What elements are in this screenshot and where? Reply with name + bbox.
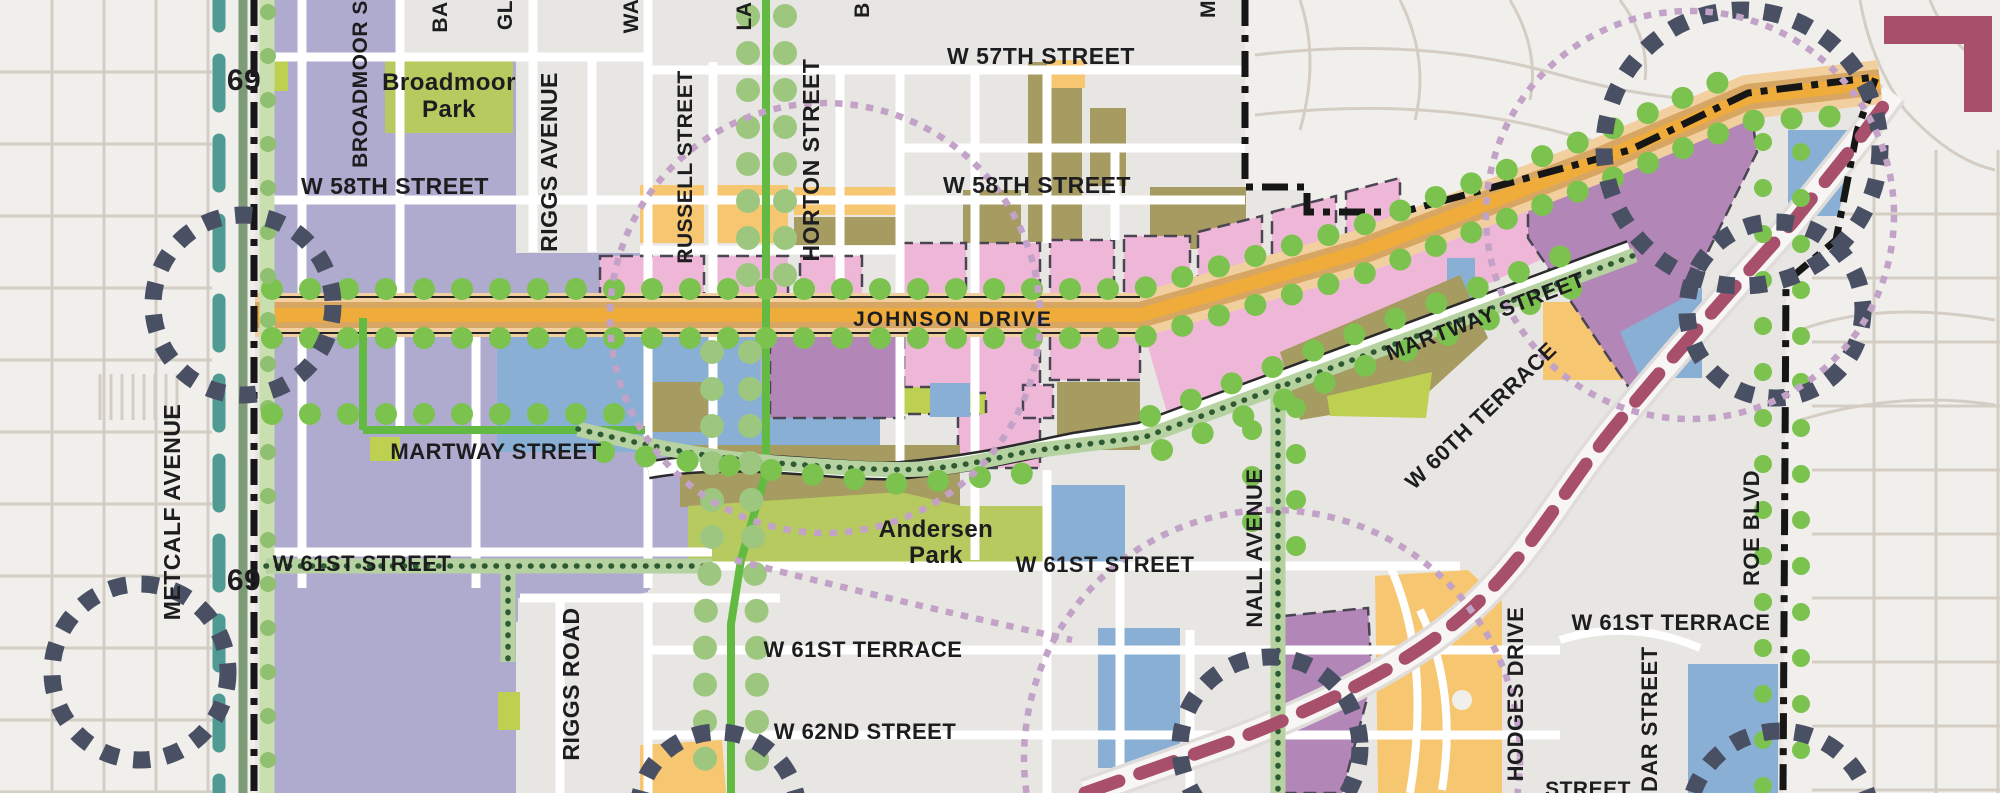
tree-dot (1567, 132, 1589, 154)
label-w61st-street-east: W 61ST STREET (1016, 552, 1195, 577)
tree-dot (745, 599, 769, 623)
tree-dot (760, 459, 782, 481)
label-hwy-69-north: 69 (227, 64, 261, 97)
tree-dot (260, 488, 276, 504)
tree-dot (1286, 536, 1306, 556)
tree-dot (1343, 323, 1365, 345)
pink-parcel-small (1023, 385, 1053, 418)
tree-dot (736, 189, 760, 213)
tree-dot (413, 327, 435, 349)
tree-dot (641, 278, 663, 300)
tree-dot (736, 263, 760, 287)
tree-dot (375, 278, 397, 300)
tree-dot (907, 278, 929, 300)
tree-dot (527, 278, 549, 300)
tree-dot (1059, 278, 1081, 300)
label-riggs-avenue: RIGGS AVENUE (536, 72, 562, 252)
tree-dot (1425, 235, 1447, 257)
tree-dot (635, 446, 657, 468)
tree-dot (745, 673, 769, 697)
tree-dot (1208, 304, 1230, 326)
tree-dot (739, 488, 763, 512)
tree-dot (489, 403, 511, 425)
tree-dot (679, 327, 701, 349)
tree-dot (793, 327, 815, 349)
tree-dot (1792, 465, 1810, 483)
tree-dot (755, 278, 777, 300)
tree-dot (773, 78, 797, 102)
tree-dot (1135, 325, 1157, 347)
tree-dot (261, 403, 283, 425)
tree-dot (1354, 262, 1376, 284)
tree-dot (844, 468, 866, 490)
tree-dot (1262, 356, 1284, 378)
tree-dot (1389, 249, 1411, 271)
tree-dot (738, 340, 762, 364)
tree-dot (1389, 200, 1411, 222)
tree-dot (1754, 639, 1772, 657)
tree-dot (1171, 315, 1193, 337)
tree-dot (1286, 490, 1306, 510)
tree-dot (1819, 105, 1841, 127)
green-parcel-sw (498, 692, 520, 730)
tree-dot (260, 136, 276, 152)
label-andersen-park-line1: Andersen (879, 516, 994, 543)
label-horton-street: HORTON STREET (798, 59, 824, 262)
tree-dot (451, 278, 473, 300)
tree-dot (717, 278, 739, 300)
tree-dot (693, 636, 717, 660)
tree-dot (1637, 152, 1659, 174)
tree-dot (831, 278, 853, 300)
label-street-partial-m: M (1197, 0, 1220, 18)
tree-dot (1754, 593, 1772, 611)
tree-dot (451, 403, 473, 425)
label-broadmoor-street: BROADMOOR S (349, 0, 372, 168)
tree-dot (1281, 284, 1303, 306)
tree-dot (694, 599, 718, 623)
label-lamar-partial: LA (733, 2, 756, 31)
tree-dot (260, 576, 276, 592)
tree-dot (260, 180, 276, 196)
tree-dot (738, 377, 762, 401)
tree-dot (1460, 221, 1482, 243)
tree-dot (1135, 276, 1157, 298)
olive-parcel-russell (648, 382, 708, 432)
tree-dot (693, 673, 717, 697)
tree-dot (677, 450, 699, 472)
tree-dot (1792, 235, 1810, 253)
tree-dot (1754, 363, 1772, 381)
tree-dot (738, 414, 762, 438)
tree-dot (773, 41, 797, 65)
label-russell-street: RUSSELL STREET (674, 70, 697, 263)
cul-de-sac (1452, 690, 1472, 710)
tree-dot (1460, 172, 1482, 194)
tree-dot (1426, 292, 1448, 314)
tree-dot (802, 464, 824, 486)
tree-dot (793, 278, 815, 300)
tree-dot (869, 278, 891, 300)
tree-dot (1151, 439, 1173, 461)
tree-dot (375, 403, 397, 425)
tree-dot (1792, 327, 1810, 345)
tree-dot (1097, 278, 1119, 300)
tree-dot (260, 4, 276, 20)
label-street-partial-wa: WA (620, 0, 643, 33)
tree-dot (718, 455, 740, 477)
tree-dot (1011, 463, 1033, 485)
tree-dot (1354, 213, 1376, 235)
tree-dot (1672, 137, 1694, 159)
tree-dot (700, 525, 724, 549)
tree-dot (1192, 422, 1214, 444)
label-johnson-drive: JOHNSON DRIVE (853, 308, 1053, 331)
tree-dot (337, 403, 359, 425)
tree-dot (1286, 444, 1306, 464)
tree-dot (260, 92, 276, 108)
tree-dot (738, 451, 762, 475)
tree-dot (697, 562, 721, 586)
tree-dot (1743, 110, 1765, 132)
tree-dot (1244, 294, 1266, 316)
tree-dot (1672, 87, 1694, 109)
label-street-partial-gl: GL (494, 0, 517, 30)
tree-dot (1242, 420, 1262, 440)
tree-dot (1180, 389, 1202, 411)
label-cedar-street: CEDAR STREET (1637, 646, 1662, 793)
tree-dot (773, 152, 797, 176)
tree-dot (565, 278, 587, 300)
tree-dot (1754, 179, 1772, 197)
tree-dot (1221, 372, 1243, 394)
tree-dot (1531, 194, 1553, 216)
tree-dot (1531, 145, 1553, 167)
tree-dot (1354, 355, 1376, 377)
tree-dot (603, 403, 625, 425)
tree-dot (773, 4, 797, 28)
tree-dot (1508, 261, 1530, 283)
label-w62nd-street: W 62ND STREET (774, 719, 957, 744)
tree-dot (736, 41, 760, 65)
tree-dot (413, 278, 435, 300)
tree-dot (1706, 72, 1728, 94)
label-street-partial-ba: BA (429, 1, 452, 32)
tree-dot (700, 414, 724, 438)
tree-dot (260, 532, 276, 548)
tree-dot (527, 327, 549, 349)
tree-dot (1302, 340, 1324, 362)
tree-dot (451, 327, 473, 349)
tree-dot (885, 473, 907, 495)
label-hwy-69-south: 69 (227, 564, 261, 597)
tree-dot (1171, 266, 1193, 288)
tree-dot (260, 444, 276, 460)
tree-dot (831, 327, 853, 349)
label-w57th-street: W 57TH STREET (947, 43, 1135, 69)
label-broadmoor-park-line1: Broadmoor (382, 69, 516, 96)
tree-dot (1281, 235, 1303, 257)
tree-dot (1286, 398, 1306, 418)
tree-dot (260, 708, 276, 724)
tree-dot (1139, 405, 1161, 427)
tree-dot (1317, 273, 1339, 295)
tree-dot (1792, 143, 1810, 161)
blue-parcel-small (930, 383, 970, 417)
label-street-partial-b: B (851, 2, 874, 18)
tree-dot (565, 403, 587, 425)
tree-dot (413, 403, 435, 425)
tree-dot (700, 340, 724, 364)
tree-dot (745, 710, 769, 734)
label-street-partial-bottom: STREET (1545, 778, 1631, 793)
tree-dot (1567, 181, 1589, 203)
tree-dot (299, 403, 321, 425)
tree-dot (736, 78, 760, 102)
tree-dot (1496, 208, 1518, 230)
tree-dot (337, 327, 359, 349)
tree-dot (565, 327, 587, 349)
tree-dot (260, 752, 276, 768)
tree-dot (641, 327, 663, 349)
tree-dot (260, 48, 276, 64)
tree-dot (260, 620, 276, 636)
tree-dot (1208, 255, 1230, 277)
tree-dot (1754, 409, 1772, 427)
tree-dot (1317, 224, 1339, 246)
tree-dot (1781, 108, 1803, 130)
tree-dot (1467, 277, 1489, 299)
tree-dot (489, 327, 511, 349)
tree-dot (1792, 419, 1810, 437)
label-metcalf-avenue: METCALF AVENUE (159, 404, 185, 621)
tree-dot (1637, 102, 1659, 124)
tree-dot (1792, 695, 1810, 713)
tree-dot (1384, 308, 1406, 330)
label-riggs-road: RIGGS ROAD (558, 607, 584, 760)
tree-dot (693, 747, 717, 771)
tree-dot (260, 664, 276, 680)
tree-dot (261, 327, 283, 349)
tree-dot (260, 268, 276, 284)
tree-dot (1792, 189, 1810, 207)
tree-dot (260, 356, 276, 372)
tree-dot (1792, 603, 1810, 621)
tree-dot (1549, 246, 1571, 268)
label-w61st-terrace-east: W 61ST TERRACE (1572, 610, 1771, 635)
planning-map: W 57TH STREETW 58TH STREETW 58TH STREETJ… (0, 0, 2000, 793)
tree-dot (1097, 327, 1119, 349)
tree-dot (983, 278, 1005, 300)
tree-dot (773, 189, 797, 213)
tree-dot (736, 152, 760, 176)
tree-dot (527, 403, 549, 425)
label-w61st-street-west: W 61ST STREET (273, 551, 452, 576)
tree-dot (1792, 557, 1810, 575)
tree-dot (375, 327, 397, 349)
label-broadmoor-park-line2: Park (422, 96, 476, 123)
tree-dot (927, 470, 949, 492)
label-w58th-street-west: W 58TH STREET (301, 173, 489, 199)
arrow-bar (1964, 16, 1992, 112)
tree-dot (1244, 245, 1266, 267)
tree-dot (1496, 159, 1518, 181)
tree-dot (1792, 511, 1810, 529)
tree-dot (1792, 649, 1810, 667)
label-nall-avenue: NALL AVENUE (1242, 468, 1267, 627)
tree-dot (1754, 133, 1772, 151)
tree-dot (1754, 317, 1772, 335)
label-roe-blvd: ROE BLVD (1739, 470, 1764, 586)
tree-dot (1754, 685, 1772, 703)
tree-dot (1314, 372, 1336, 394)
label-hodges-drive: HODGES DRIVE (1503, 607, 1528, 782)
label-andersen-park-line2: Park (909, 542, 963, 569)
tree-dot (741, 525, 765, 549)
label-w61st-terrace-center: W 61ST TERRACE (764, 637, 963, 662)
tree-dot (700, 377, 724, 401)
tree-dot (945, 278, 967, 300)
tree-dot (1059, 327, 1081, 349)
label-martway-street-west: MARTWAY STREET (390, 439, 601, 464)
planning-map-canvas: W 57TH STREETW 58TH STREETW 58TH STREETJ… (0, 0, 2000, 793)
tree-dot (260, 312, 276, 328)
tree-dot (773, 263, 797, 287)
tree-dot (773, 226, 797, 250)
label-w58th-street-east: W 58TH STREET (943, 172, 1131, 198)
tree-dot (1425, 186, 1447, 208)
tree-dot (1707, 122, 1729, 144)
tree-dot (773, 115, 797, 139)
tree-dot (489, 278, 511, 300)
tree-dot (736, 226, 760, 250)
tree-dot (299, 278, 321, 300)
tree-dot (679, 278, 701, 300)
